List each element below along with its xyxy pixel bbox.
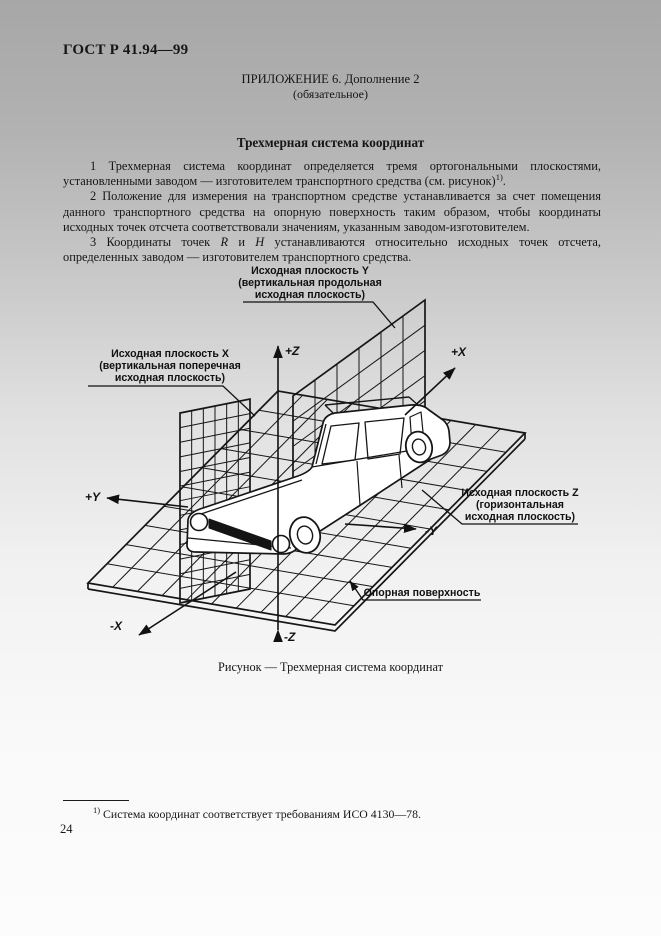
- page-number: 24: [60, 822, 73, 837]
- document-page: ГОСТ Р 41.94—99 ПРИЛОЖЕНИЕ 6. Дополнение…: [0, 0, 661, 936]
- axis-label-minus-x: -X: [110, 619, 123, 633]
- figure-caption: Рисунок — Трехмерная система координат: [0, 660, 661, 675]
- plane-z-label-line2: (горизонтальная: [476, 499, 564, 511]
- plane-x-label-line3: исходная плоскость): [115, 372, 225, 384]
- coordinate-system-figure: +Z -Z +X -X +Y -Y Исходная плоскость Y (…: [60, 258, 620, 668]
- support-surface-label: Опорная поверхность: [364, 587, 481, 599]
- axis-label-plus-y: +Y: [85, 490, 101, 504]
- paragraph-2: 2 Положение для измерения на транспортно…: [63, 189, 601, 235]
- plane-y-leader: [243, 302, 395, 328]
- plane-x-leader: [88, 386, 255, 416]
- axis-label-plus-x: +X: [451, 345, 467, 359]
- doc-number: ГОСТ Р 41.94—99: [63, 42, 188, 59]
- axis-label-minus-z: -Z: [284, 630, 296, 644]
- y-axis-positive: [107, 498, 188, 507]
- x-axis-positive: [405, 368, 455, 415]
- body-text: 1 Трехмерная система координат определяе…: [63, 159, 601, 265]
- footnote-ref: 1): [496, 172, 503, 182]
- appendix-heading: ПРИЛОЖЕНИЕ 6. Дополнение 2: [0, 72, 661, 87]
- paragraph-1: 1 Трехмерная система координат определяе…: [63, 159, 601, 189]
- plane-y-label-line3: исходная плоскость): [255, 289, 365, 301]
- appendix-note: (обязательное): [0, 87, 661, 102]
- headlight-left: [191, 514, 208, 531]
- section-title: Трехмерная система координат: [0, 135, 661, 151]
- plane-y-label-line2: (вертикальная продольная: [238, 277, 382, 289]
- plane-z-label-line3: исходная плоскость): [465, 511, 575, 523]
- plane-x-label-line2: (вертикальная поперечная: [99, 360, 241, 372]
- plane-y-label-line1: Исходная плоскость Y: [251, 265, 369, 277]
- plane-z-label-line1: Исходная плоскость Z: [461, 487, 579, 499]
- axis-label-minus-y: -Y: [425, 524, 438, 538]
- plane-x-label-line1: Исходная плоскость X: [111, 348, 229, 360]
- axis-label-plus-z: +Z: [285, 344, 300, 358]
- headlight-right: [273, 536, 290, 553]
- footnote-rule: [63, 800, 129, 801]
- x-axis-negative: [139, 572, 236, 635]
- footnote: 1) Система координат соответствует требо…: [63, 807, 601, 821]
